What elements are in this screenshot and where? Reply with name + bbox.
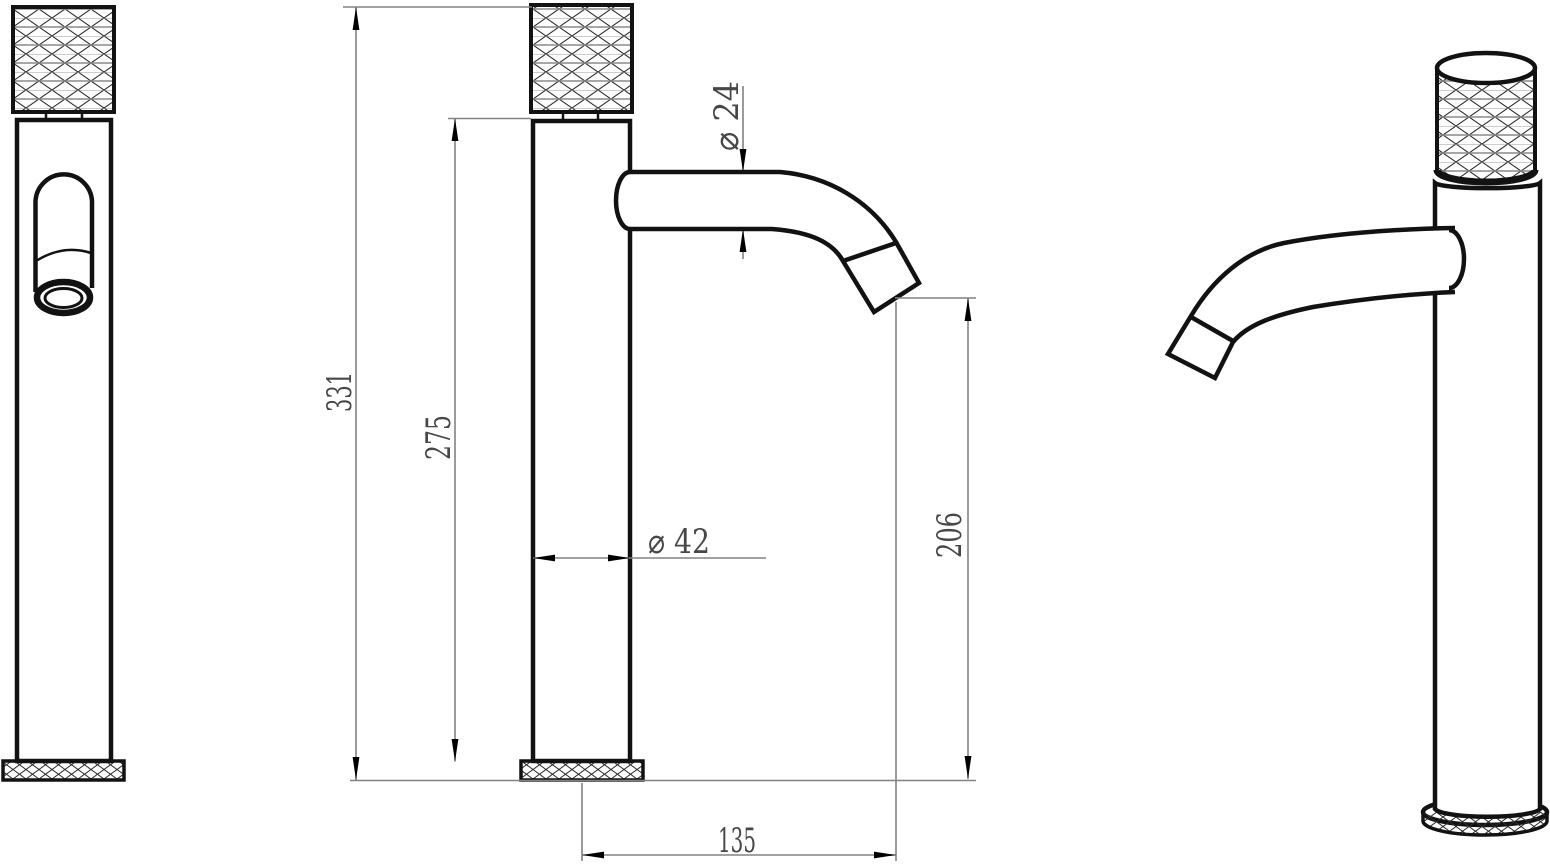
dim-arrow-left xyxy=(582,852,604,859)
front-handle-knurled xyxy=(13,7,114,112)
front-outlet-bore xyxy=(45,289,82,308)
persp-handle-top-face xyxy=(1437,53,1535,83)
dim-arrow-up xyxy=(353,7,360,30)
perspective-view xyxy=(1168,53,1547,835)
dim-outlet-height: 206 xyxy=(930,298,971,779)
dim-arrow-right xyxy=(874,852,896,859)
dim-spout-reach: 135 xyxy=(582,821,896,861)
side-spout xyxy=(630,172,919,312)
dim-label-body-diameter: ⌀ 42 xyxy=(648,522,710,562)
side-handle-knurled xyxy=(531,5,632,112)
dim-arrow-down xyxy=(740,149,747,172)
dim-label-spout-diameter: ⌀ 24 xyxy=(707,81,747,151)
dim-arrow-up xyxy=(965,298,972,321)
dim-arrow-up xyxy=(740,229,747,252)
dim-arrow-down xyxy=(353,757,360,780)
dim-label-spout-reach: 135 xyxy=(718,821,756,861)
faucet-technical-drawing: 331 275 ⌀ 24 ⌀ 42 206 xyxy=(0,0,1550,864)
dim-label-overall-height: 331 xyxy=(320,372,360,412)
dim-body-height: 275 xyxy=(419,119,459,762)
side-body xyxy=(533,121,630,761)
front-spout-silhouette xyxy=(36,174,93,292)
dim-label-body-height: 275 xyxy=(419,415,459,460)
dim-arrow-down xyxy=(452,739,459,762)
dim-overall-height: 331 xyxy=(320,7,360,780)
front-view xyxy=(3,7,124,780)
persp-spout xyxy=(1168,228,1464,378)
dimension-annotations: 331 275 ⌀ 24 ⌀ 42 206 xyxy=(320,7,976,861)
side-spout-fill xyxy=(630,172,919,312)
front-base-knurled xyxy=(3,761,124,780)
side-base-knurled xyxy=(521,761,643,780)
persp-spout-fill xyxy=(1168,228,1455,378)
front-spout-outlet xyxy=(36,174,93,313)
dim-arrow-up xyxy=(452,119,459,142)
dim-label-outlet-height: 206 xyxy=(930,512,970,558)
dim-arrow-down xyxy=(965,756,972,779)
